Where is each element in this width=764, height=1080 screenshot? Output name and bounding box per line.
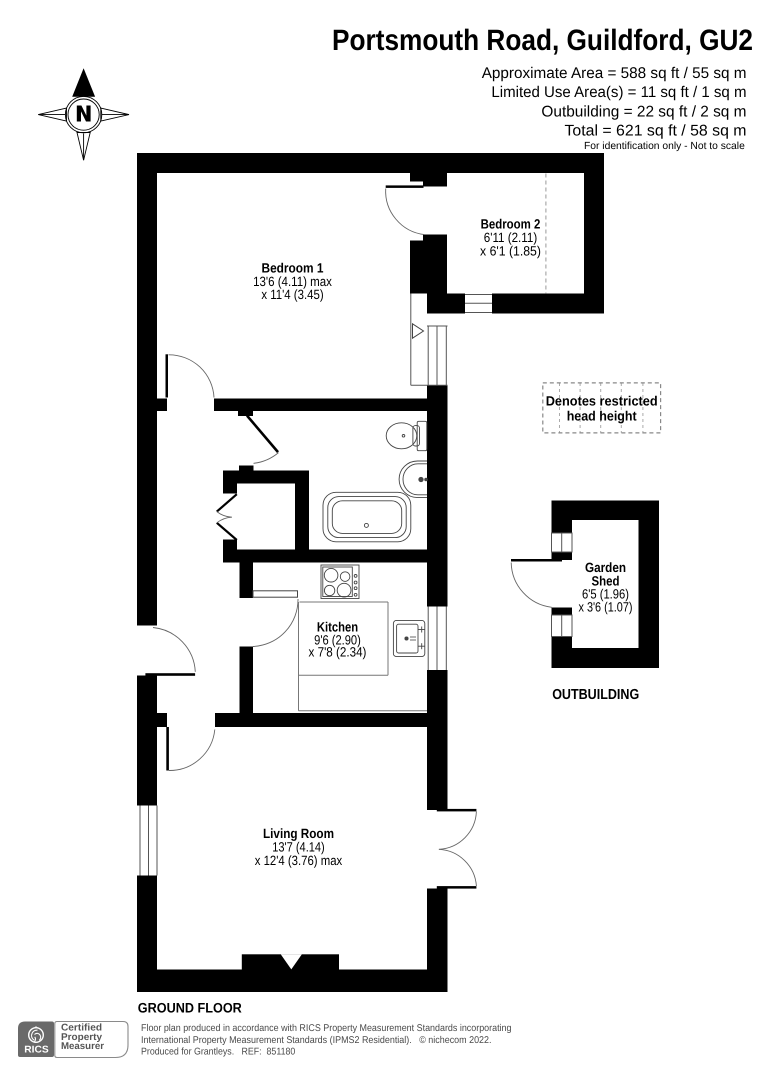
svg-text:x 12'4 (3.76) max: x 12'4 (3.76) max xyxy=(255,853,343,868)
svg-text:Denotes restricted: Denotes restricted xyxy=(546,394,658,409)
svg-text:Approximate Area = 588 sq ft /: Approximate Area = 588 sq ft / 55 sq m xyxy=(482,65,747,82)
svg-text:GROUND FLOOR: GROUND FLOOR xyxy=(138,1000,242,1015)
svg-text:International Property Measure: International Property Measurement Stand… xyxy=(141,1035,492,1046)
svg-text:Limited Use Area(s) = 11 sq ft: Limited Use Area(s) = 11 sq ft / 1 sq m xyxy=(491,84,746,101)
svg-text:head height: head height xyxy=(567,408,637,423)
svg-text:x 6'1 (1.85): x 6'1 (1.85) xyxy=(480,243,541,258)
svg-text:x 7'8 (2.34): x 7'8 (2.34) xyxy=(309,645,367,660)
svg-text:Total = 621 sq ft / 58 sq m: Total = 621 sq ft / 58 sq m xyxy=(565,123,747,140)
svg-text:x 3'6 (1.07): x 3'6 (1.07) xyxy=(579,600,633,615)
svg-text:OUTBUILDING: OUTBUILDING xyxy=(552,687,639,703)
svg-text:Measurer: Measurer xyxy=(61,1041,104,1052)
svg-text:Floor plan produced in accorda: Floor plan produced in accordance with R… xyxy=(141,1023,512,1034)
svg-text:Portsmouth Road, Guildford, GU: Portsmouth Road, Guildford, GU2 xyxy=(332,24,753,57)
svg-text:x 11'4 (3.45): x 11'4 (3.45) xyxy=(261,287,323,302)
svg-text:RICS: RICS xyxy=(24,1045,49,1056)
svg-text:Produced for Grantleys. REF:: Produced for Grantleys. REF: 851180 xyxy=(141,1047,296,1058)
svg-text:Outbuilding = 22 sq ft / 2 sq: Outbuilding = 22 sq ft / 2 sq m xyxy=(541,103,746,120)
svg-text:For identification only - Not: For identification only - Not to scale xyxy=(584,141,745,152)
